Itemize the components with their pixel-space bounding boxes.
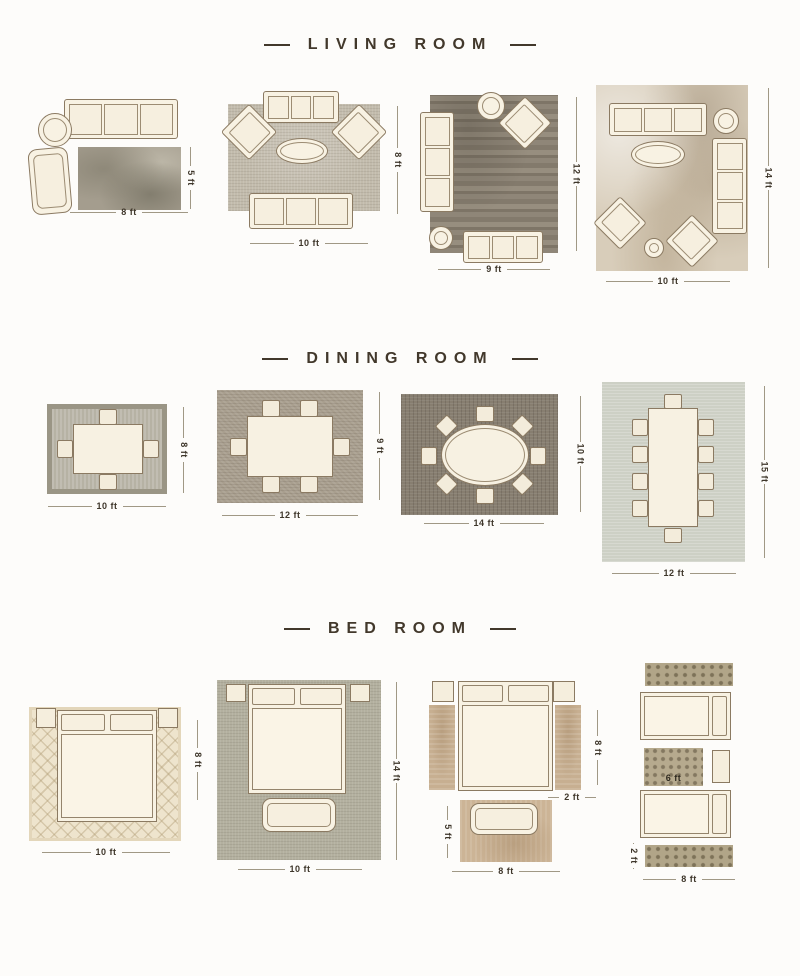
accent-rug: 6 ft [644, 748, 703, 786]
title-dash-left [284, 628, 310, 630]
width-dimension: 10 ft [48, 501, 166, 511]
sofa [609, 103, 707, 136]
height-dimension: 12 ft [566, 97, 587, 251]
pillow [712, 794, 727, 834]
width-label: 10 ft [290, 864, 311, 874]
pillow [252, 688, 295, 705]
runner-length-label: 8 ft [681, 874, 697, 884]
pillow [110, 714, 154, 731]
dining-chair [57, 440, 73, 458]
sofa [64, 99, 178, 139]
dining-chair [99, 409, 117, 425]
runner-length-dimension: 8 ft [643, 874, 735, 884]
width-label: 10 ft [97, 501, 118, 511]
armchair [27, 146, 73, 215]
sofa [249, 193, 353, 229]
dining-chair [230, 438, 247, 456]
foot-rug-height-dimension: 5 ft [440, 806, 456, 858]
sofa [712, 138, 747, 234]
dining-table [247, 416, 333, 477]
bed [57, 710, 157, 822]
dining-chair [143, 440, 159, 458]
width-label: 12 ft [280, 510, 301, 520]
width-label: 10 ft [96, 847, 117, 857]
runner-width-dimension: 2 ft [626, 843, 642, 869]
title-dash-left [262, 358, 288, 360]
width-dimension: 9 ft [438, 264, 550, 274]
height-label: 14 ft [392, 760, 402, 781]
runner-rug [555, 705, 581, 790]
bed [640, 790, 731, 838]
width-dimension: 12 ft [222, 510, 358, 520]
height-dimension: 15 ft [754, 386, 775, 558]
width-dimension: 14 ft [424, 518, 544, 528]
width-label: 10 ft [299, 238, 320, 248]
bed-blanket [644, 794, 709, 834]
dining-chair [476, 488, 494, 504]
pillows [61, 714, 153, 731]
runner-length-dimension: 8 ft [590, 710, 606, 785]
dining-chair [300, 400, 318, 417]
runner-width-label: 2 ft [564, 792, 580, 802]
bench [470, 803, 538, 835]
bed [458, 681, 553, 791]
dining-chair [632, 500, 648, 517]
runner-rug [645, 845, 733, 867]
dining-chair [632, 419, 648, 436]
nightstand [553, 681, 575, 702]
dining-chair [664, 394, 682, 409]
dining-chair [632, 473, 648, 490]
nightstand [712, 750, 730, 783]
nightstand [350, 684, 370, 702]
bench-cushion [475, 808, 533, 830]
section-title-text: BED ROOM [328, 620, 472, 638]
sofa [420, 112, 454, 212]
nightstand [226, 684, 246, 702]
bench [262, 798, 336, 832]
nightstand [36, 708, 56, 728]
title-dash-right [510, 44, 536, 46]
height-label: 5 ft [186, 170, 196, 186]
pillow [508, 685, 549, 702]
side-table [713, 108, 739, 134]
foot-rug-height-label: 5 ft [443, 824, 453, 840]
pillows [252, 688, 342, 705]
side-table [38, 113, 72, 147]
section-title-text: LIVING ROOM [308, 36, 493, 54]
dining-chair [262, 400, 280, 417]
height-label: 14 ft [764, 167, 774, 188]
foot-rug-width-dimension: 8 ft [452, 866, 560, 876]
width-label: 10 ft [658, 276, 679, 286]
side-table [429, 226, 453, 250]
nightstand [158, 708, 178, 728]
side-table [644, 238, 664, 258]
title-dash-right [512, 358, 538, 360]
width-label: 12 ft [664, 568, 685, 578]
rug-size-guide-infographic: LIVING ROOM 8 ft 5 ft 10 ft 8 ft 9 ft 12… [0, 0, 800, 976]
runner-rug [429, 705, 455, 790]
runner-rug [645, 663, 733, 686]
height-dimension: 8 ft [176, 407, 192, 493]
height-label: 10 ft [576, 443, 586, 464]
pillow [61, 714, 105, 731]
width-label: 9 ft [486, 264, 502, 274]
dining-chair [262, 476, 280, 493]
dining-chair [421, 447, 437, 465]
width-label: 8 ft [121, 207, 137, 217]
height-label: 12 ft [572, 163, 582, 184]
height-label: 9 ft [375, 438, 385, 454]
bed-blanket [61, 734, 153, 818]
bed-blanket [252, 708, 342, 790]
dining-chair [698, 419, 714, 436]
coffee-table [276, 138, 328, 164]
dining-chair [698, 446, 714, 463]
dining-chair [664, 528, 682, 543]
pillow [462, 685, 503, 702]
section-title-text: DINING ROOM [306, 350, 493, 368]
height-label: 15 ft [760, 461, 770, 482]
height-dimension: 10 ft [570, 396, 591, 512]
dining-chair [530, 447, 546, 465]
dining-table [441, 424, 529, 486]
foot-rug-width-label: 8 ft [498, 866, 514, 876]
rug [78, 147, 181, 210]
pillow [300, 688, 343, 705]
section-title-bed-room: BED ROOM [0, 620, 800, 638]
dining-chair [333, 438, 350, 456]
width-dimension: 10 ft [42, 847, 170, 857]
height-label: 8 ft [179, 442, 189, 458]
runner-width-dimension: 2 ft [548, 792, 596, 802]
pillows [462, 685, 549, 702]
title-dash-left [264, 44, 290, 46]
bench-cushion [267, 803, 331, 827]
section-title-dining-room: DINING ROOM [0, 350, 800, 368]
dining-chair [99, 474, 117, 490]
height-dimension: 5 ft [183, 147, 199, 209]
side-table [477, 92, 505, 120]
title-dash-right [490, 628, 516, 630]
height-dimension: 9 ft [372, 392, 388, 500]
width-dimension: 10 ft [250, 238, 368, 248]
height-dimension: 14 ft [758, 88, 779, 268]
width-dimension: 8 ft [70, 207, 188, 217]
height-dimension: 8 ft [190, 720, 206, 800]
runner-length-label: 8 ft [593, 740, 603, 756]
bed-blanket [462, 705, 549, 787]
dining-table [648, 408, 698, 527]
pillow [712, 696, 727, 736]
width-label: 14 ft [474, 518, 495, 528]
width-dimension: 10 ft [238, 864, 362, 874]
dining-chair [632, 446, 648, 463]
dining-chair [698, 473, 714, 490]
width-dimension: 10 ft [606, 276, 730, 286]
bed [640, 692, 731, 740]
height-dimension: 8 ft [390, 106, 406, 214]
dining-chair [300, 476, 318, 493]
coffee-table [631, 141, 685, 168]
dining-table [73, 424, 143, 474]
bed-blanket [644, 696, 709, 736]
width-dimension: 12 ft [612, 568, 736, 578]
section-title-living-room: LIVING ROOM [0, 36, 800, 54]
accent-rug-size-label: 6 ft [666, 773, 682, 786]
dining-chair [476, 406, 494, 422]
runner-width-label: 2 ft [629, 848, 639, 864]
dining-chair [698, 500, 714, 517]
height-label: 8 ft [193, 752, 203, 768]
height-label: 8 ft [393, 152, 403, 168]
bed [248, 684, 346, 794]
sofa [463, 231, 543, 263]
height-dimension: 14 ft [386, 682, 407, 860]
nightstand [432, 681, 454, 702]
sofa [263, 91, 339, 123]
